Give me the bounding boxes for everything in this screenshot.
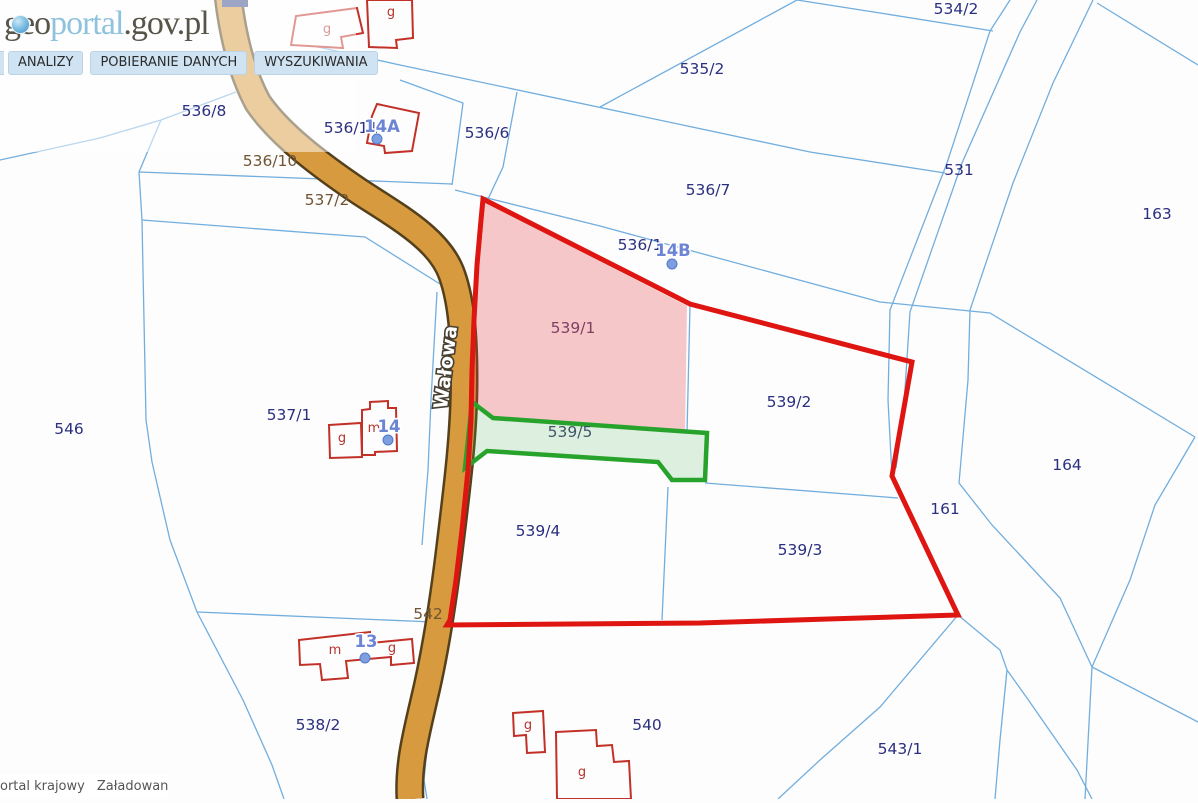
parcel-line [958,615,1092,799]
parcel-line [778,615,958,799]
map-viewport[interactable]: gggmmgggWałowa534/2535/2531536/7163536/8… [0,0,1198,799]
logo-text-portal: portal [50,5,123,42]
address-label: 14 [378,417,401,436]
building-letter: m [329,643,342,658]
status-portal-name: ortal krajowy [0,779,85,794]
top-menu: ANALIZY POBIERANIE DANYCH WYSZUKIWANIA [8,51,378,75]
status-loaded-text: Załadowano [97,779,168,794]
building-letter: g [578,765,586,780]
address-label: 14B [655,241,691,260]
parcel-label: 537/1 [267,406,312,424]
parcel-line [400,80,463,185]
parcel-line [995,670,1007,799]
parcel-label: 546 [54,420,84,438]
parcel-label: 536/10 [243,152,298,170]
address-point-dot [667,259,677,269]
parcel-label: 543/1 [878,740,923,758]
building-letter: g [388,641,396,656]
parcel-label: 531 [944,161,974,179]
parcel-label: 534/2 [934,0,979,18]
logo-text-tail: .gov.pl [123,5,208,42]
parcel-line [959,0,1093,667]
menu-button-wyszukiwania[interactable]: WYSZUKIWANIA [254,51,377,75]
parcel-line [687,306,690,433]
building-outline [556,730,631,799]
parcel-label: 536/7 [686,181,731,199]
address-label: 13 [355,632,378,651]
parcel-label: 542 [413,605,443,623]
address-label: 14A [364,117,400,136]
parcel-label: 164 [1052,456,1082,474]
parcel-label: 536/8 [182,102,227,120]
parcel-line [197,612,433,622]
parcel-line [422,292,437,545]
parcel-line [600,0,797,107]
parcel-line [1092,437,1195,667]
parcel-label: 539/4 [516,522,561,540]
parcel-line [139,172,452,184]
status-bar: ortal krajowy Załadowano [0,774,168,799]
building-letter: g [387,5,395,20]
address-point-dot [372,134,382,144]
geoportal-logo[interactable]: geoportal.gov.pl [4,4,209,44]
parcel-label: 161 [930,500,960,518]
parcel-label: 539/2 [767,393,812,411]
parcel-line [705,483,898,498]
parcel-line [1092,667,1198,722]
menu-button-pobieranie-danych[interactable]: POBIERANIE DANYCH [90,51,247,75]
parcel-label: 539/1 [551,319,596,337]
address-point-dot [360,653,370,663]
map-svg[interactable]: gggmmgggWałowa534/2535/2531536/7163536/8… [0,0,1198,799]
parcel-line [662,487,668,620]
parcel-label: 535/2 [680,60,725,78]
building-letter: g [524,718,532,733]
parcel-label: 537/2 [305,191,350,209]
parcel-label: 538/2 [296,716,341,734]
parcel-line [488,92,517,199]
building-letter: g [338,431,346,446]
parcel-label: 163 [1142,205,1172,223]
parcel-label: 539/3 [778,541,823,559]
parcel-line [1085,667,1092,799]
address-point-dot [383,435,393,445]
parcel-label: 540 [632,716,662,734]
parcel-label: 539/5 [548,423,593,441]
logo-globe-icon [11,15,30,34]
parcel-line [1097,3,1198,65]
menu-button-partial[interactable] [0,51,4,75]
parcel-line [318,47,945,173]
menu-button-analizy[interactable]: ANALIZY [8,51,83,75]
parcel-label: 536/6 [465,124,510,142]
